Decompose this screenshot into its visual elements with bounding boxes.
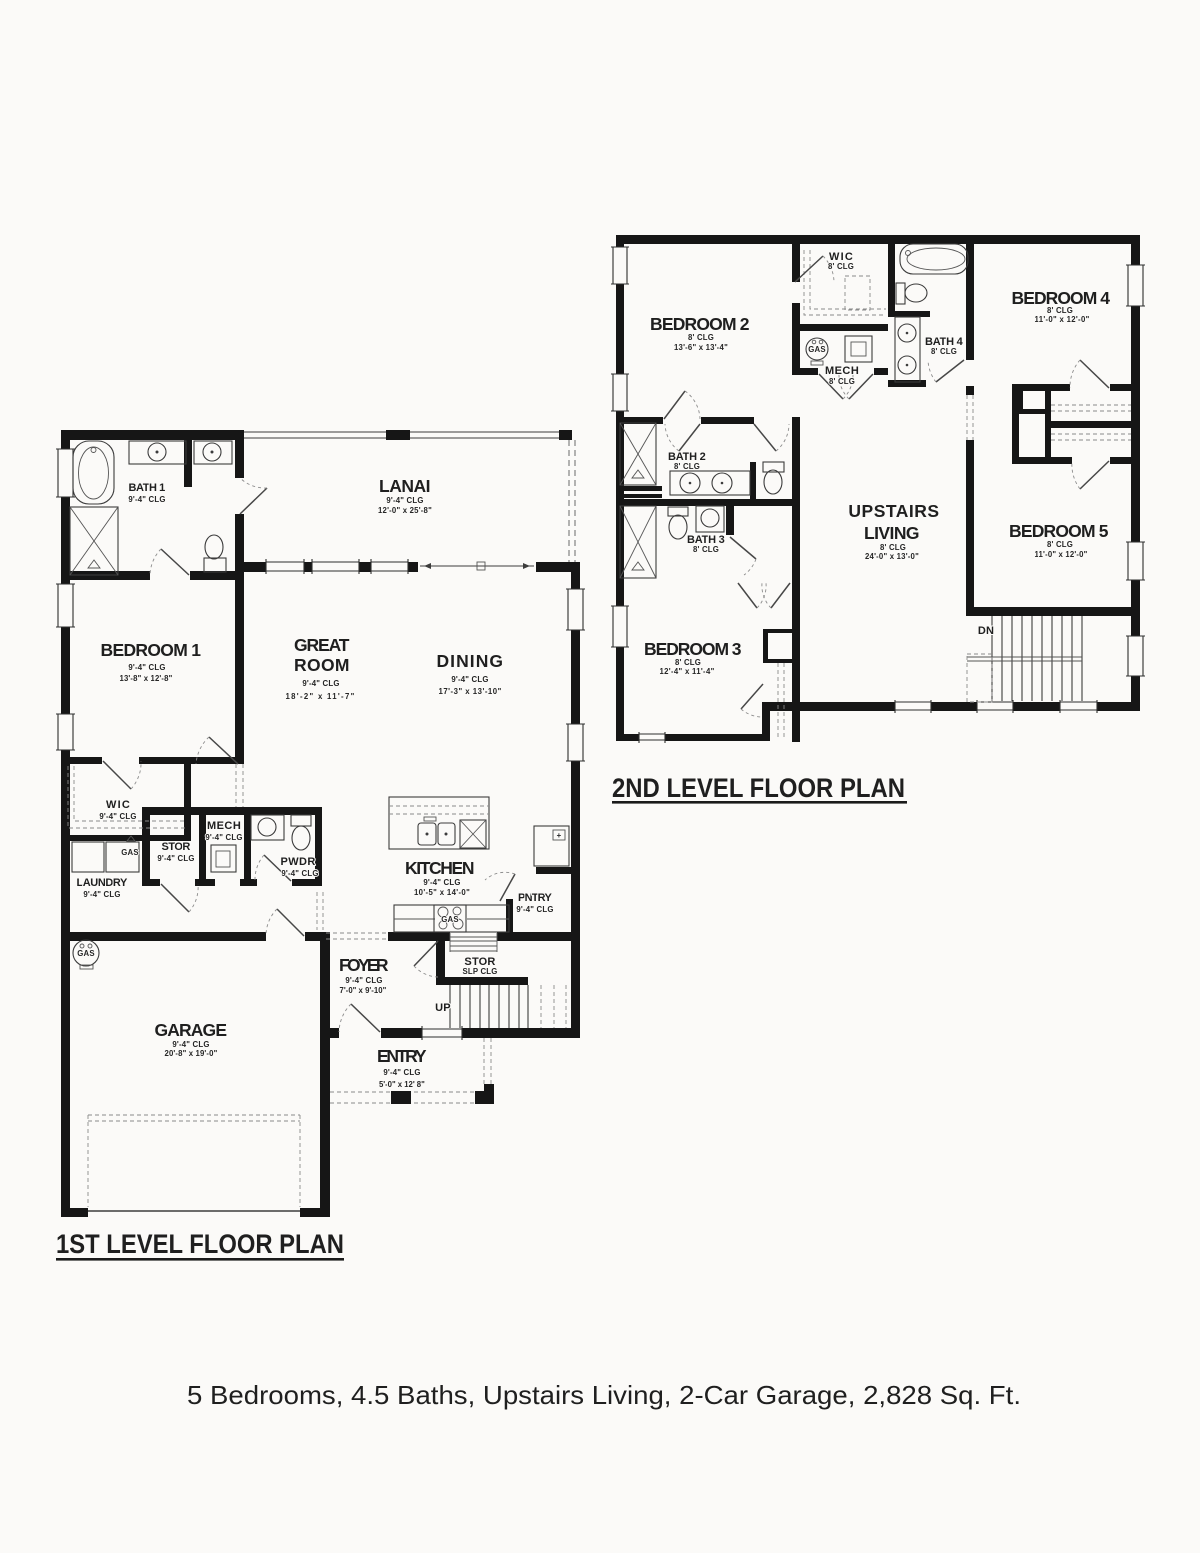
svg-text:2ND LEVEL FLOOR PLAN: 2ND LEVEL FLOOR PLAN <box>612 773 905 803</box>
svg-text:11'-0" x 12'-0": 11'-0" x 12'-0" <box>1035 315 1090 324</box>
svg-text:7'-0" x 9'-10": 7'-0" x 9'-10" <box>340 986 387 995</box>
svg-text:12'-4" x 11'-4": 12'-4" x 11'-4" <box>660 667 715 676</box>
svg-text:LANAI: LANAI <box>379 476 431 496</box>
svg-text:ENTRY: ENTRY <box>377 1046 427 1066</box>
svg-text:9'-4" CLG: 9'-4" CLG <box>302 679 339 688</box>
svg-text:UP: UP <box>435 1002 451 1014</box>
svg-text:DN: DN <box>978 625 994 637</box>
svg-text:9'-4" CLG: 9'-4" CLG <box>99 812 136 821</box>
svg-text:8' CLG: 8' CLG <box>880 543 906 552</box>
svg-text:8' CLG: 8' CLG <box>828 262 854 271</box>
svg-text:FOYER: FOYER <box>339 955 389 975</box>
svg-text:9'-4" CLG: 9'-4" CLG <box>281 869 318 878</box>
svg-text:9'-4" CLG: 9'-4" CLG <box>516 905 553 914</box>
svg-text:DINING: DINING <box>437 651 504 671</box>
svg-text:+: + <box>557 831 562 840</box>
svg-text:9'-4" CLG: 9'-4" CLG <box>423 878 460 887</box>
svg-text:PWDR: PWDR <box>281 856 316 868</box>
svg-text:8' CLG: 8' CLG <box>829 377 855 386</box>
svg-text:BEDROOM 1: BEDROOM 1 <box>101 640 202 660</box>
svg-text:SLP CLG: SLP CLG <box>462 967 497 976</box>
svg-text:9'-4" CLG: 9'-4" CLG <box>383 1068 420 1077</box>
svg-text:8' CLG: 8' CLG <box>674 462 700 471</box>
svg-text:ROOM: ROOM <box>294 655 350 675</box>
svg-text:GAS: GAS <box>808 345 826 354</box>
svg-text:BATH 1: BATH 1 <box>129 482 166 494</box>
svg-text:UPSTAIRS: UPSTAIRS <box>848 501 939 521</box>
svg-text:MECH: MECH <box>207 820 241 832</box>
svg-text:12'-0" x 25'-8": 12'-0" x 25'-8" <box>378 506 432 515</box>
svg-text:1ST LEVEL FLOOR PLAN: 1ST LEVEL FLOOR PLAN <box>56 1229 344 1259</box>
svg-text:GARAGE: GARAGE <box>155 1020 228 1040</box>
svg-text:BEDROOM 3: BEDROOM 3 <box>644 639 742 659</box>
svg-text:8' CLG: 8' CLG <box>931 347 957 356</box>
svg-text:BEDROOM 4: BEDROOM 4 <box>1012 288 1111 308</box>
svg-text:9'-4" CLG: 9'-4" CLG <box>83 890 120 899</box>
svg-text:9'-4" CLG: 9'-4" CLG <box>128 663 165 672</box>
svg-text:18'-2" x 11'-7": 18'-2" x 11'-7" <box>286 692 355 701</box>
svg-text:GREAT: GREAT <box>294 635 350 655</box>
svg-text:9'-4" CLG: 9'-4" CLG <box>172 1040 209 1049</box>
svg-text:LAUNDRY: LAUNDRY <box>77 877 128 889</box>
svg-text:9'-4" CLG: 9'-4" CLG <box>205 833 242 842</box>
svg-text:LIVING: LIVING <box>864 523 920 543</box>
svg-text:GAS: GAS <box>77 949 95 958</box>
svg-text:9'-4" CLG: 9'-4" CLG <box>386 496 423 505</box>
svg-text:8' CLG: 8' CLG <box>1047 540 1073 549</box>
svg-text:17'-3" x 13'-10": 17'-3" x 13'-10" <box>439 687 502 696</box>
svg-text:5 Bedrooms, 4.5 Baths, Upstair: 5 Bedrooms, 4.5 Baths, Upstairs Living, … <box>187 1380 1021 1410</box>
svg-text:8' CLG: 8' CLG <box>675 658 701 667</box>
svg-text:KITCHEN: KITCHEN <box>405 858 475 878</box>
svg-text:11'-0" x 12'-0": 11'-0" x 12'-0" <box>1035 550 1088 559</box>
svg-text:WIC: WIC <box>106 799 130 811</box>
svg-text:8' CLG: 8' CLG <box>693 545 719 554</box>
svg-text:9'-4" CLG: 9'-4" CLG <box>157 854 194 863</box>
svg-text:MECH: MECH <box>825 365 859 377</box>
svg-text:8' CLG: 8' CLG <box>688 333 714 342</box>
svg-text:GAS: GAS <box>441 915 459 924</box>
svg-text:13'-8" x 12'-8": 13'-8" x 12'-8" <box>120 674 173 683</box>
svg-text:BEDROOM 5: BEDROOM 5 <box>1009 521 1109 541</box>
svg-text:GAS: GAS <box>121 848 139 857</box>
svg-text:24'-0" x 13'-0": 24'-0" x 13'-0" <box>865 552 919 561</box>
svg-text:BEDROOM 2: BEDROOM 2 <box>650 314 750 334</box>
svg-text:5'-0" x 12' 8": 5'-0" x 12' 8" <box>379 1080 425 1089</box>
svg-text:10'-5" x 14'-0": 10'-5" x 14'-0" <box>414 888 470 897</box>
svg-text:20'-8" x 19'-0": 20'-8" x 19'-0" <box>165 1049 218 1058</box>
svg-text:9'-4" CLG: 9'-4" CLG <box>345 976 382 985</box>
svg-text:STOR: STOR <box>162 841 191 853</box>
svg-text:8' CLG: 8' CLG <box>1047 306 1073 315</box>
svg-text:9'-4" CLG: 9'-4" CLG <box>451 675 488 684</box>
svg-text:13'-6" x 13'-4": 13'-6" x 13'-4" <box>674 343 728 352</box>
svg-text:PNTRY: PNTRY <box>518 892 552 904</box>
svg-text:9'-4" CLG: 9'-4" CLG <box>128 495 165 504</box>
